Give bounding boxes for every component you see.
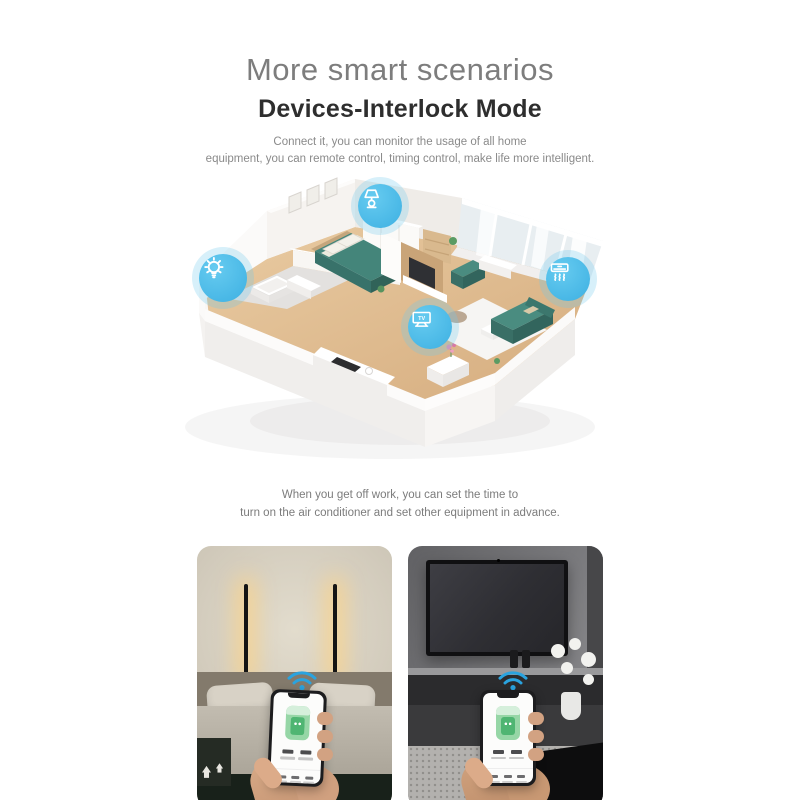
photo-living-room-scene xyxy=(408,546,603,800)
phone-notch xyxy=(497,693,519,698)
page-subtitle: Devices-Interlock Mode xyxy=(0,95,800,124)
finger xyxy=(528,712,544,725)
description-line-1: Connect it, you can monitor the usage of… xyxy=(273,136,526,148)
phone-notch xyxy=(287,692,309,698)
caption-line-1: When you get off work, you can set the t… xyxy=(282,489,518,501)
hand-with-phone xyxy=(458,678,568,800)
wifi-icon xyxy=(496,664,530,692)
app-stats xyxy=(483,750,533,760)
tv-icon: TV xyxy=(408,305,435,332)
light-bulb-icon xyxy=(199,254,229,284)
light-bulb-badge xyxy=(199,254,247,302)
wifi-icon xyxy=(285,664,319,692)
table-lamp-icon xyxy=(358,184,385,211)
wall-lamp-right xyxy=(333,584,337,678)
photo-row xyxy=(0,546,800,800)
finger xyxy=(528,730,544,743)
smart-plug-graphic xyxy=(284,705,309,740)
finger xyxy=(528,748,544,761)
header: More smart scenarios Devices-Interlock M… xyxy=(0,0,800,167)
caption: When you get off work, you can set the t… xyxy=(0,487,800,522)
caption-line-2: turn on the air conditioner and set othe… xyxy=(240,507,560,519)
description: Connect it, you can monitor the usage of… xyxy=(0,134,800,167)
floorplan-illustration: TV xyxy=(185,171,615,471)
finger xyxy=(317,712,333,725)
wall-lamp-left xyxy=(244,584,248,678)
app-stats xyxy=(271,749,321,761)
hand-with-phone xyxy=(247,678,357,800)
product-page: More smart scenarios Devices-Interlock M… xyxy=(0,0,800,800)
tv-camera-dot xyxy=(497,559,500,562)
smart-plug-graphic xyxy=(496,706,520,740)
apartment-render xyxy=(185,171,615,471)
page-title: More smart scenarios xyxy=(0,52,800,88)
description-line-2: equipment, you can remote control, timin… xyxy=(206,153,595,165)
phone-screen xyxy=(483,693,533,783)
finger xyxy=(317,748,333,761)
deer-figurines xyxy=(197,738,231,786)
tv-badge-label: TV xyxy=(418,316,425,322)
photo-bedroom-scene xyxy=(197,546,392,800)
air-conditioner-icon xyxy=(546,257,573,284)
finger xyxy=(317,730,333,743)
